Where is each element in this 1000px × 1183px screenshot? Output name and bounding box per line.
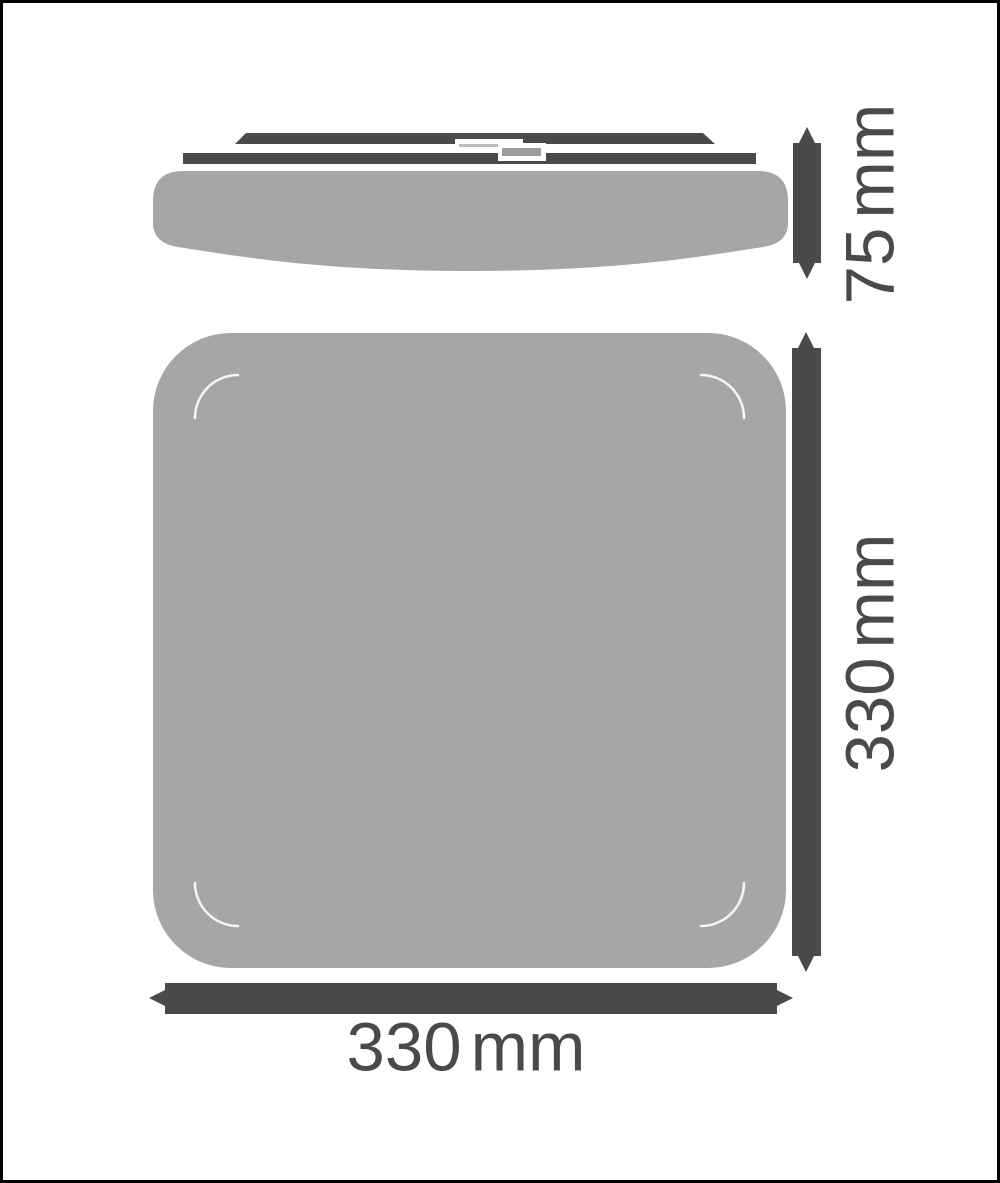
dimension-arrow-up-icon <box>799 127 815 143</box>
side-view-clip-detail-right <box>498 143 546 161</box>
front-height-unit: mm <box>832 533 909 648</box>
side-view-back-panel <box>183 153 756 164</box>
front-width-dimension-label: 330mm <box>346 1013 585 1082</box>
front-width-value: 330 <box>346 1009 461 1086</box>
height-unit: mm <box>832 104 909 219</box>
side-view-diffuser-body <box>153 171 788 271</box>
front-height-value: 330 <box>832 657 909 772</box>
dimension-arrow-up-icon <box>798 332 814 348</box>
front-height-dimension-label: 330mm <box>836 533 905 772</box>
dimension-arrow-down-icon <box>799 263 815 279</box>
dimension-arrow-down-icon <box>798 956 814 972</box>
front-width-unit: mm <box>471 1009 586 1086</box>
front-height-dimension-bar <box>792 348 821 956</box>
clip-detail-fill <box>502 148 541 156</box>
height-dimension-label: 75mm <box>836 104 905 305</box>
front-view-panel <box>153 333 786 968</box>
dimension-drawing: 75mm 330mm 330mm <box>0 0 1000 1183</box>
dimension-arrow-left-icon <box>149 990 165 1006</box>
dimension-arrow-right-icon <box>777 990 793 1006</box>
clip-detail-line <box>459 144 498 147</box>
height-dimension-bar <box>793 143 821 263</box>
height-value: 75 <box>832 228 909 305</box>
